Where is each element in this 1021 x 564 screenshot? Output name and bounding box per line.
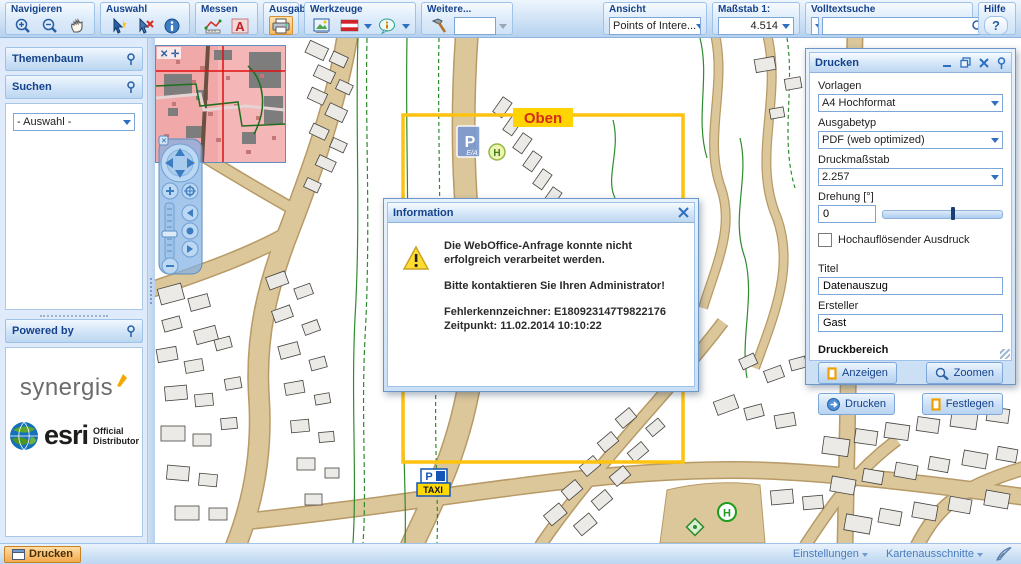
hochaufloesend-label: Hochauflösender Ausdruck (838, 234, 969, 246)
pin-icon[interactable] (126, 325, 136, 337)
vorlagen-label: Vorlagen (818, 80, 1003, 92)
ausgabetyp-select[interactable]: PDF (web optimized) (818, 131, 1003, 149)
titel-input[interactable] (821, 278, 1000, 294)
group-label: Ansicht (609, 4, 646, 15)
kartenausschnitte-menu[interactable]: Kartenausschnitte (880, 548, 989, 560)
ansicht-select-value: Points of Intere... (613, 20, 696, 32)
language-flag-tool[interactable] (337, 16, 361, 35)
svg-text:A: A (235, 19, 245, 34)
resize-grip[interactable] (1000, 349, 1010, 359)
sidebar-splitter[interactable] (148, 38, 155, 543)
dialog-title: Information (393, 207, 454, 219)
group-label: Weitere... (427, 4, 471, 15)
esri-logo: esri OfficialDistributor (6, 420, 142, 451)
volltextsuche-inputwrap (822, 17, 988, 35)
drucken-button[interactable]: Drucken (818, 393, 895, 415)
pan-tool[interactable] (65, 16, 89, 35)
panel-header-powered-by[interactable]: Powered by (5, 319, 143, 343)
zoom-in-tool[interactable] (11, 16, 35, 35)
drehung-slider[interactable] (882, 210, 1003, 219)
ersteller-label: Ersteller (818, 300, 1003, 312)
dialog-message: Die WebOffice-Anfrage konnte nicht erfol… (444, 239, 682, 386)
einstellungen-menu[interactable]: Einstellungen (787, 548, 874, 560)
anzeigen-button[interactable]: Anzeigen (818, 362, 897, 384)
drehung-label: Drehung [°] (818, 191, 1003, 203)
massstab-combo[interactable]: 4.514 (718, 17, 794, 35)
druckbereich-heading: Druckbereich (818, 344, 1003, 356)
svg-text:TAXI: TAXI (423, 485, 443, 495)
overview-close-icon[interactable]: ✕ (160, 49, 168, 60)
toolbar-group-ansicht: Ansicht Points of Intere... (603, 2, 707, 35)
pin-icon[interactable] (126, 53, 136, 65)
print-area-icon (827, 367, 837, 380)
drehung-slider-handle[interactable] (951, 207, 955, 220)
dialog-message-line-2: Bitte kontaktieren Sie Ihren Administrat… (444, 279, 682, 293)
dialog-error-code: Fehlerkennzeichner: E180923147T9822176 (444, 305, 682, 319)
drehung-input[interactable] (821, 206, 873, 222)
warning-icon (402, 245, 430, 271)
ansicht-select[interactable]: Points of Intere... (609, 17, 701, 35)
print-panel-body: Vorlagen A4 Hochformat Ausgabetyp PDF (w… (809, 73, 1012, 361)
toolbar-group-hilfe: Hilfe ? (978, 2, 1016, 35)
taskbar-drucken-button[interactable]: Drucken (4, 546, 81, 563)
close-icon[interactable] (678, 207, 689, 218)
toolbar-group-werkzeuge: Werkzeuge (304, 2, 416, 35)
ersteller-input[interactable] (821, 315, 1000, 331)
information-dialog: Information Die WebOffice-Anfrage konnte… (383, 198, 699, 392)
panel-header-suchen[interactable]: Suchen (5, 75, 143, 99)
marker-bus-stop-1: H (489, 144, 505, 160)
print-area-top-label: Oben (524, 110, 562, 127)
volltextsuche-input[interactable] (825, 18, 971, 34)
toolbar-group-ausgabe: Ausgabe (263, 2, 299, 35)
zoom-slider-handle[interactable] (162, 231, 177, 237)
print-panel: Drucken Vorlagen A4 Hochformat Ausgabety… (805, 48, 1016, 385)
group-label: Navigieren (11, 4, 62, 15)
minimize-icon[interactable] (942, 58, 952, 68)
vorlagen-select[interactable]: A4 Hochformat (818, 94, 1003, 112)
panel-divider (40, 315, 108, 317)
druckmassstab-label: Druckmaßstab (818, 154, 1003, 166)
toolbar-group-volltextsuche: Volltextsuche (805, 2, 973, 35)
restore-icon[interactable] (960, 57, 971, 68)
chevron-down-icon (862, 553, 868, 560)
massstab-value: 4.514 (750, 20, 778, 32)
toolbar-group-massstab: Maßstab 1: 4.514 (712, 2, 800, 35)
group-label: Werkzeuge (310, 4, 363, 15)
panel-title: Powered by (12, 325, 74, 337)
main-toolbar: Navigieren Auswahl Messen A Ausgabe Werk… (0, 0, 1021, 38)
close-icon[interactable] (979, 58, 989, 68)
status-bar: Drucken Einstellungen Kartenausschnitte (0, 543, 1021, 564)
esri-globe-icon (9, 421, 39, 451)
volltextsuche-select[interactable] (811, 17, 819, 35)
synergis-logo: synergis (6, 374, 142, 402)
suchen-select-value: - Auswahl - (17, 116, 71, 128)
callout-tool[interactable] (375, 16, 399, 35)
overview-move-icon[interactable]: ✛ (171, 49, 180, 60)
magnifier-icon (935, 367, 949, 380)
weitere-combo[interactable] (454, 17, 496, 35)
toolbar-group-messen: Messen A (195, 2, 258, 35)
svg-text:P: P (425, 471, 432, 483)
festlegen-button[interactable]: Festlegen (922, 393, 1003, 415)
print-panel-title: Drucken (815, 57, 859, 69)
group-label: Messen (201, 4, 238, 15)
flag-dropdown-caret[interactable] (364, 24, 372, 33)
toolbar-group-auswahl: Auswahl (100, 2, 190, 35)
suchen-select[interactable]: - Auswahl - (13, 113, 135, 131)
help-button[interactable]: ? (984, 16, 1008, 35)
druckmassstab-select[interactable]: 2.257 (818, 168, 1003, 186)
chevron-down-icon (977, 553, 983, 560)
marker-taxi: P TAXI (417, 469, 450, 496)
svg-text:E/A: E/A (466, 150, 478, 157)
map-navigation-widget[interactable]: ✕ (158, 135, 203, 275)
pin-icon[interactable] (126, 81, 136, 93)
marker-parking-entry: P E/A (457, 126, 480, 157)
group-label: Auswahl (106, 4, 147, 15)
panel-title: Suchen (12, 81, 52, 93)
powered-by-panel-body: synergis esri OfficialDistributor (5, 347, 143, 537)
zoom-out-tool[interactable] (38, 16, 62, 35)
toolbar-group-navigieren: Navigieren (5, 2, 95, 35)
panel-title: Themenbaum (12, 53, 84, 65)
group-label: Volltextsuche (811, 4, 875, 15)
dialog-message-line-1: Die WebOffice-Anfrage konnte nicht erfol… (444, 239, 682, 267)
callout-dropdown-caret[interactable] (402, 24, 410, 33)
svg-text:H: H (723, 508, 731, 520)
tools-hammer-icon[interactable] (427, 16, 451, 35)
select-features-tool[interactable] (106, 16, 130, 35)
go-arrow-icon (827, 398, 840, 411)
ausgabetyp-label: Ausgabetyp (818, 117, 1003, 129)
suchen-panel-body: - Auswahl - (5, 103, 143, 310)
weboffice-app: CS P E/A H P TAXI H (0, 0, 1021, 564)
group-label: Hilfe (984, 4, 1006, 15)
titel-label: Titel (818, 263, 1003, 275)
information-dialog-titlebar[interactable]: Information (387, 202, 695, 223)
pin-icon[interactable] (997, 57, 1006, 69)
export-image-tool[interactable] (310, 16, 334, 35)
measure-distance-tool[interactable] (201, 16, 225, 35)
panel-header-themenbaum[interactable]: Themenbaum (5, 47, 143, 71)
clear-selection-tool[interactable] (133, 16, 157, 35)
svg-text:P: P (465, 134, 476, 151)
feather-redline-icon[interactable] (995, 546, 1013, 562)
svg-text:H: H (493, 148, 500, 159)
group-label: Maßstab 1: (718, 4, 770, 15)
svg-text:✕: ✕ (161, 138, 167, 145)
window-icon (12, 549, 25, 560)
information-dialog-body: Die WebOffice-Anfrage konnte nicht erfol… (387, 223, 695, 387)
print-tool[interactable] (269, 16, 293, 35)
dialog-timestamp: Zeitpunkt: 11.02.2014 10:10:22 (444, 319, 682, 333)
identify-tool[interactable] (160, 16, 184, 35)
sidebar: Themenbaum Suchen - Auswahl - Powered by… (0, 38, 148, 543)
toolbar-group-weitere: Weitere... (421, 2, 513, 35)
hochaufloesend-checkbox[interactable] (818, 233, 832, 247)
print-area-icon (931, 398, 941, 411)
zoomen-button[interactable]: Zoomen (926, 362, 1003, 384)
measure-area-tool[interactable]: A (228, 16, 252, 35)
print-panel-titlebar[interactable]: Drucken (809, 52, 1012, 73)
weitere-combo-caret[interactable] (499, 24, 507, 33)
